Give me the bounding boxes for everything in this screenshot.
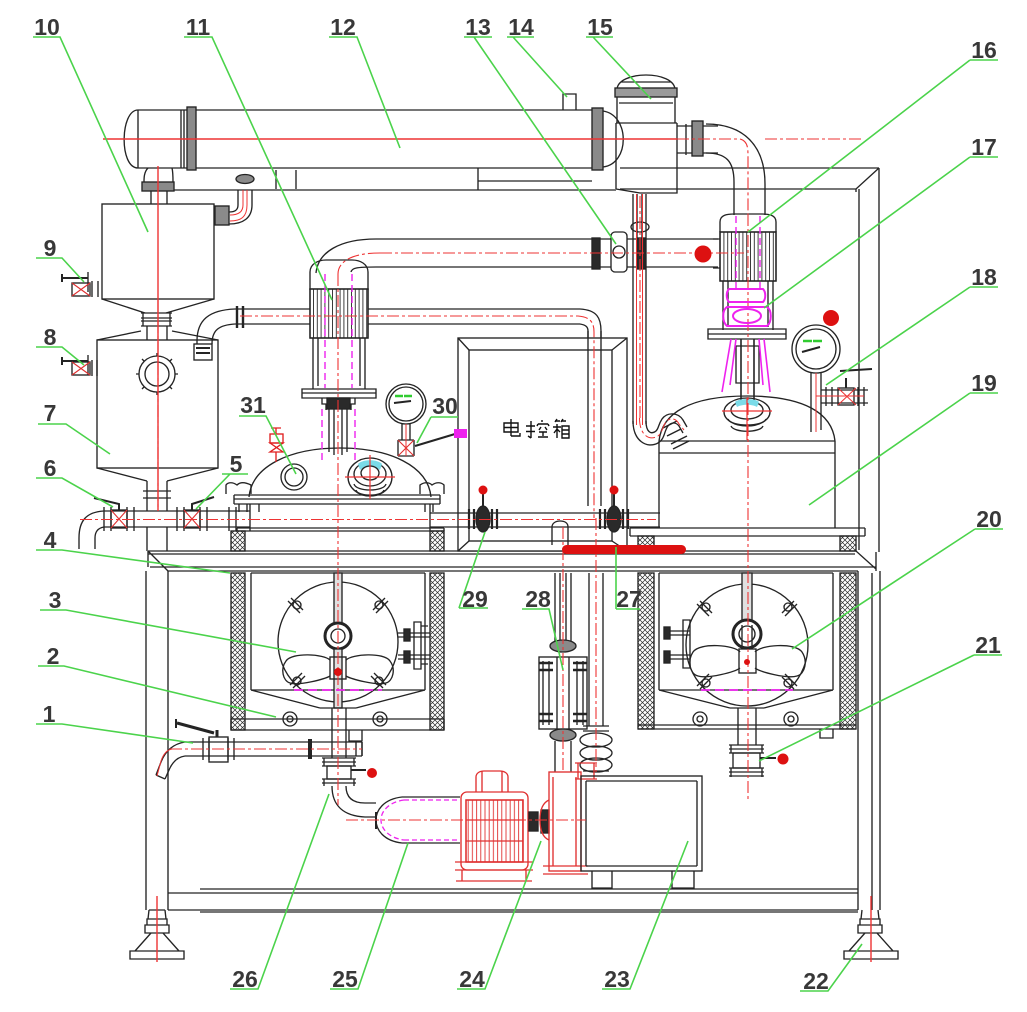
- svg-text:27: 27: [616, 586, 642, 612]
- svg-text:8: 8: [44, 324, 57, 350]
- svg-text:19: 19: [971, 370, 997, 396]
- svg-text:23: 23: [604, 966, 630, 992]
- svg-text:14: 14: [508, 14, 534, 40]
- svg-text:31: 31: [240, 392, 266, 418]
- svg-text:6: 6: [44, 455, 57, 481]
- svg-text:28: 28: [525, 586, 551, 612]
- svg-text:15: 15: [587, 14, 613, 40]
- svg-text:13: 13: [465, 14, 491, 40]
- svg-text:1: 1: [43, 701, 56, 727]
- svg-text:16: 16: [971, 37, 997, 63]
- svg-text:20: 20: [976, 506, 1002, 532]
- svg-text:21: 21: [975, 632, 1001, 658]
- svg-text:5: 5: [230, 451, 243, 477]
- svg-text:25: 25: [332, 966, 358, 992]
- svg-text:24: 24: [459, 966, 485, 992]
- svg-text:11: 11: [186, 14, 211, 40]
- svg-text:30: 30: [432, 393, 458, 419]
- svg-text:10: 10: [34, 14, 60, 40]
- svg-text:18: 18: [971, 264, 997, 290]
- svg-text:26: 26: [232, 966, 258, 992]
- svg-text:12: 12: [330, 14, 356, 40]
- svg-text:22: 22: [803, 968, 829, 994]
- svg-text:4: 4: [44, 527, 57, 553]
- svg-text:2: 2: [47, 643, 60, 669]
- svg-text:3: 3: [49, 587, 62, 613]
- svg-text:17: 17: [971, 134, 997, 160]
- svg-text:29: 29: [462, 586, 488, 612]
- svg-text:9: 9: [44, 235, 57, 261]
- svg-text:7: 7: [44, 400, 57, 426]
